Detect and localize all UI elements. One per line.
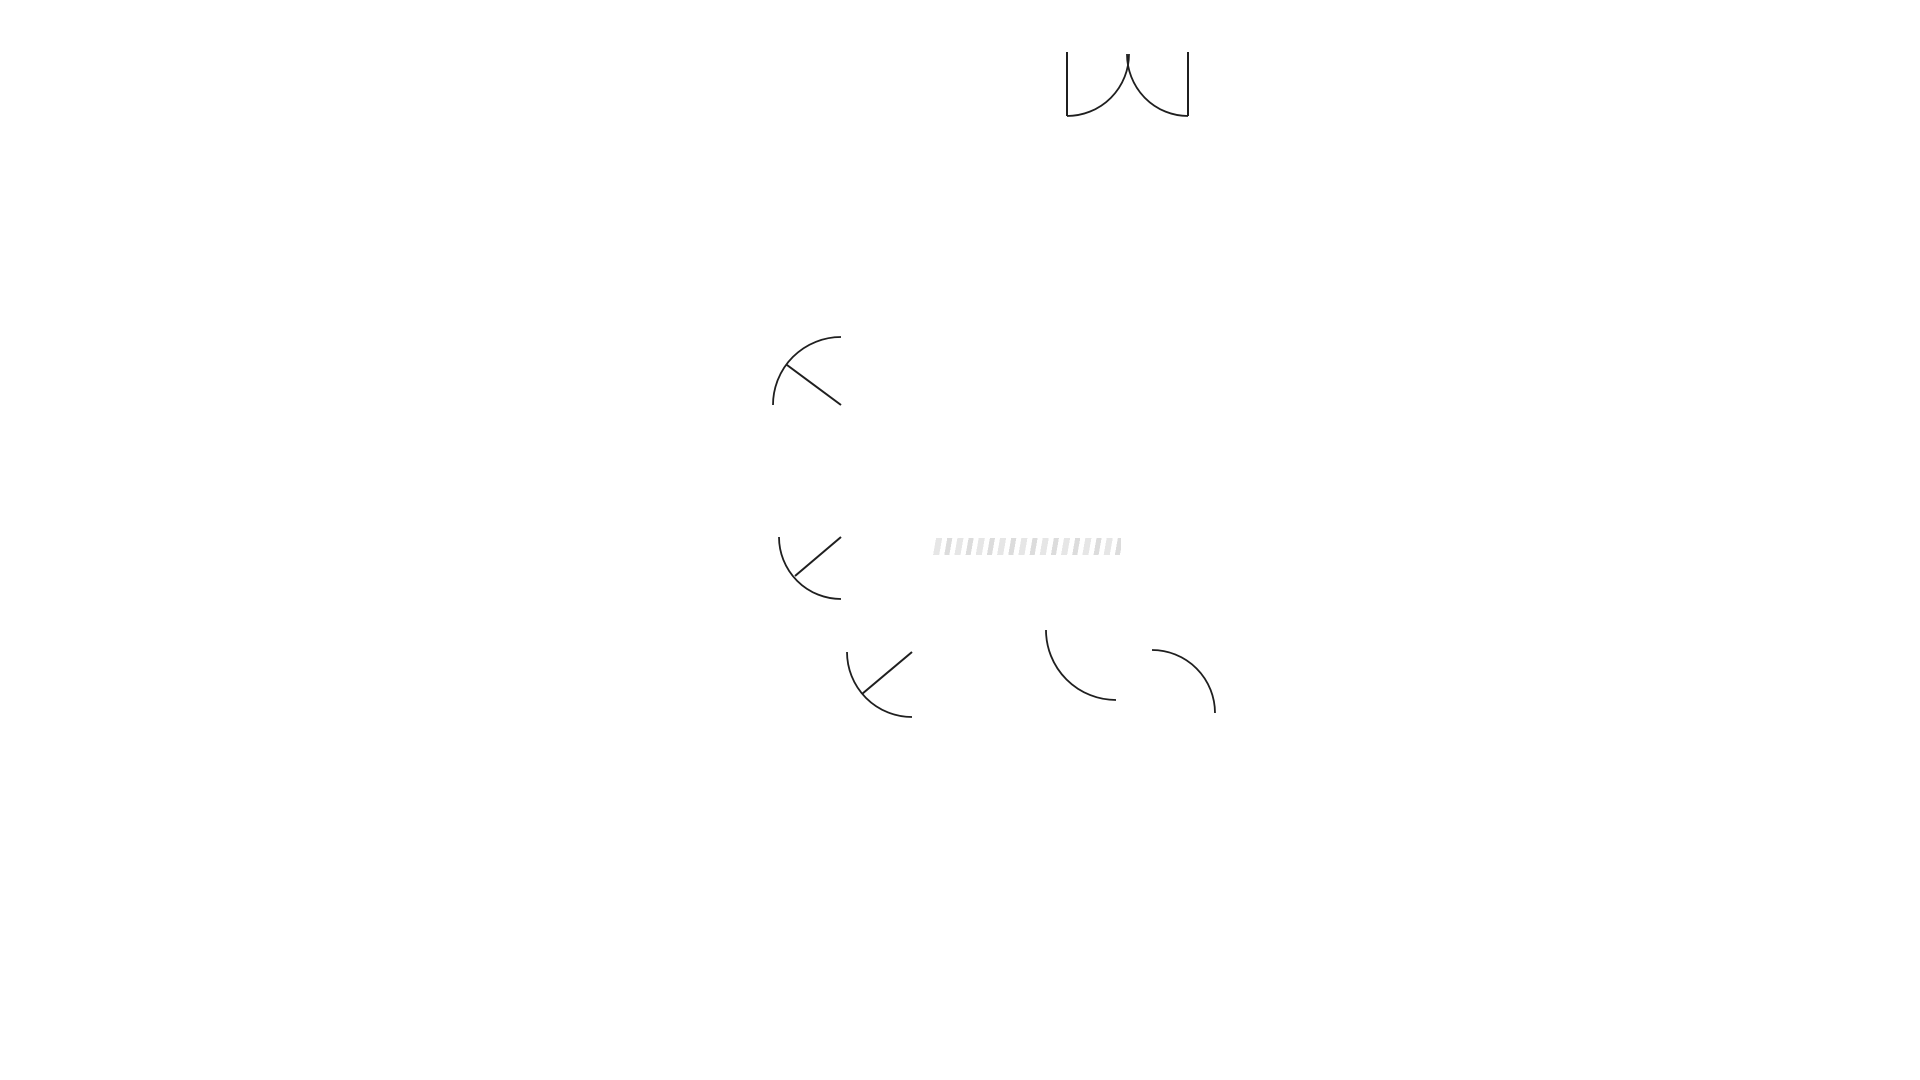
entry-door-swing: [1152, 650, 1215, 713]
kitchen-door-swing: [1046, 630, 1116, 700]
bedroom-door-swing: [847, 652, 912, 717]
logo-mountain-icon: [107, 1066, 153, 1080]
bathroom-door-leaf: [795, 537, 841, 576]
logo-mountain-icon: [153, 1072, 185, 1080]
primary-bathroom-door-leaf: [787, 365, 841, 405]
primary-bathroom-door-swing: [773, 337, 841, 405]
floor-plan-page: [0, 0, 1920, 1080]
balcony-door-swing-left: [1067, 54, 1129, 116]
bathroom-door-swing: [779, 537, 841, 599]
watermark-overlay: [931, 538, 1121, 555]
balcony-door-swing-right: [1127, 54, 1188, 116]
bedroom-door-leaf: [862, 652, 912, 694]
